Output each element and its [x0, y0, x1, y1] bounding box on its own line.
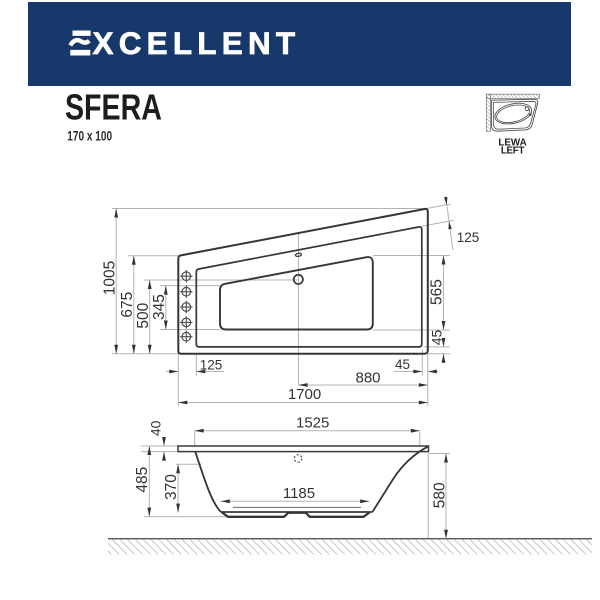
svg-text:1525: 1525	[296, 415, 329, 432]
svg-text:SFERA: SFERA	[65, 87, 162, 127]
svg-text:1005: 1005	[101, 261, 118, 295]
svg-text:1185: 1185	[283, 485, 315, 502]
svg-text:125: 125	[200, 357, 223, 372]
svg-text:880: 880	[355, 370, 380, 387]
svg-text:485: 485	[134, 467, 151, 493]
svg-text:580: 580	[431, 482, 448, 508]
svg-text:LEFT: LEFT	[501, 145, 525, 156]
svg-text:1700: 1700	[288, 386, 321, 403]
svg-text:565: 565	[429, 279, 446, 305]
svg-text:40: 40	[147, 420, 163, 436]
svg-text:45: 45	[429, 330, 445, 346]
svg-text:125: 125	[457, 230, 480, 245]
svg-text:345: 345	[151, 294, 168, 320]
svg-text:500: 500	[135, 302, 152, 328]
svg-text:XCELLENT: XCELLENT	[93, 25, 301, 61]
svg-text:170 x 100: 170 x 100	[67, 128, 112, 144]
svg-text:675: 675	[119, 292, 136, 318]
svg-text:45: 45	[395, 357, 410, 372]
svg-text:370: 370	[163, 474, 180, 500]
